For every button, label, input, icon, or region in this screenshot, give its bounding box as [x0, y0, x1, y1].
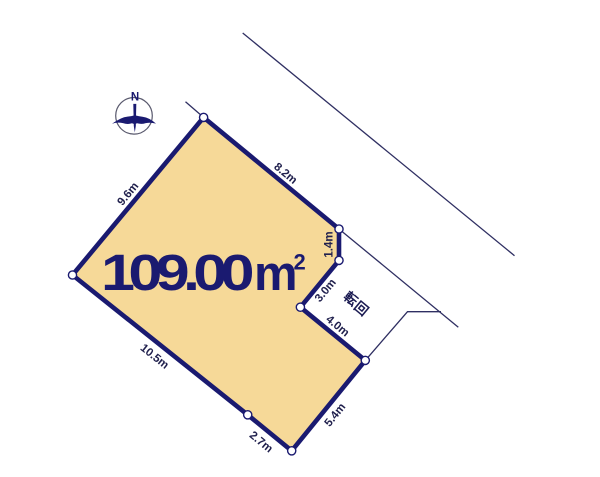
svg-text:1.4m: 1.4m [324, 231, 336, 257]
svg-text:2: 2 [294, 250, 306, 275]
svg-text:m: m [254, 247, 298, 301]
svg-text:109.00: 109.00 [101, 244, 255, 301]
svg-text:N: N [131, 92, 139, 104]
